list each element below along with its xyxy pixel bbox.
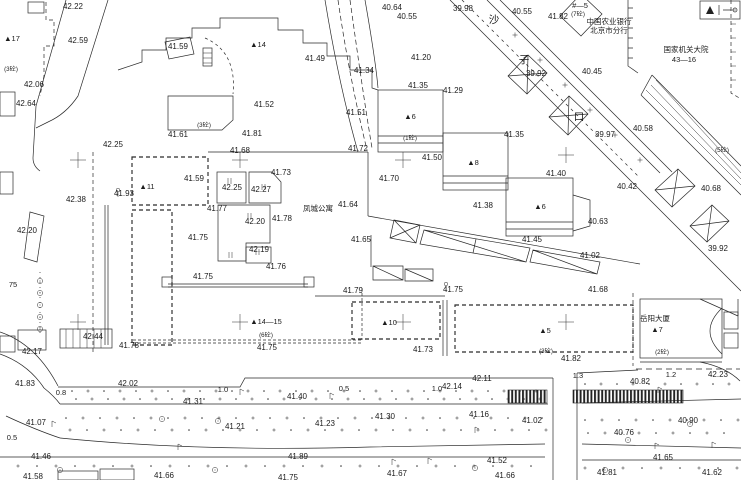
tree-icon-dot <box>40 281 41 282</box>
spot-elevation: 40.58 <box>633 124 654 133</box>
texture-dot <box>723 432 725 434</box>
texture-dot <box>107 398 109 400</box>
spot-elevation: 41.23 <box>315 419 336 428</box>
spot-elevation: 40.63 <box>588 217 609 226</box>
texture-dot <box>363 398 365 400</box>
spot-elevation: 41.65 <box>653 453 674 462</box>
structure-note: (2砼) <box>655 348 669 356</box>
texture-plus <box>659 466 662 469</box>
spot-elevation: 41.58 <box>23 472 44 480</box>
grid-cross <box>558 314 574 330</box>
texture-dot <box>689 432 691 434</box>
texture-dot <box>359 390 361 392</box>
texture-plus <box>396 464 399 467</box>
texture-dot <box>712 383 714 385</box>
building-number: ▲7 <box>651 325 663 334</box>
texture-plus <box>502 389 505 392</box>
texture-plus <box>204 428 207 431</box>
spot-elevation: 41.52 <box>254 100 275 109</box>
texture-plus <box>16 464 19 467</box>
texture-plus <box>285 416 288 419</box>
spot-elevation: 42.14 <box>442 382 463 391</box>
place-name: 国家机关大院 <box>664 44 709 54</box>
topleft-road-edges <box>0 0 108 194</box>
texture-dot <box>135 390 137 392</box>
texture-dot <box>494 429 496 431</box>
texture-dot <box>530 465 532 467</box>
tree-icon-dot <box>475 468 476 469</box>
texture-dot <box>423 390 425 392</box>
texture-plus <box>218 397 221 400</box>
slope-tick <box>428 458 432 464</box>
texture-plus <box>476 428 479 431</box>
texture-plus <box>182 389 185 392</box>
texture-plus <box>374 428 377 431</box>
spot-elevation: 41.70 <box>379 174 400 183</box>
texture-dot <box>75 398 77 400</box>
texture-dot <box>139 398 141 400</box>
spot-elevation: 40.55 <box>512 7 533 16</box>
spot-elevation: 40.68 <box>701 184 722 193</box>
texture-plus <box>282 397 285 400</box>
texture-plus <box>634 418 637 421</box>
texture-dot <box>302 465 304 467</box>
texture-dot <box>454 465 456 467</box>
texture-dot <box>391 390 393 392</box>
spot-elevation: 41.31 <box>183 397 204 406</box>
spot-elevation: 41.68 <box>588 285 609 294</box>
texture-plus <box>310 389 313 392</box>
texture-plus <box>81 416 84 419</box>
texture-plus <box>90 397 93 400</box>
dimension-mark: 1.0 <box>432 384 442 393</box>
texture-plus <box>705 431 708 434</box>
spot-elevation: 42.20 <box>245 217 266 226</box>
spot-elevation: 41.75 <box>193 272 214 281</box>
texture-plus <box>68 428 71 431</box>
texture-dot <box>395 398 397 400</box>
spot-elevation: 41.52 <box>487 456 508 465</box>
texture-plus <box>246 389 249 392</box>
texture-dot <box>405 417 407 419</box>
texture-dot <box>426 429 428 431</box>
texture-dot <box>203 398 205 400</box>
spot-elevation: 42.17 <box>22 347 43 356</box>
spot-elevation: 41.21 <box>225 422 246 431</box>
texture-dot <box>487 390 489 392</box>
spot-elevation: 40.76 <box>614 428 635 437</box>
texture-dot <box>188 465 190 467</box>
texture-dot <box>358 429 360 431</box>
texture-plus <box>320 464 323 467</box>
spot-elevation: 42.27 <box>251 185 272 194</box>
spot-elevation: 42.06 <box>24 80 45 89</box>
spot-elevation: 39.97 <box>595 130 616 139</box>
texture-dot <box>290 429 292 431</box>
curved-lane <box>325 0 378 152</box>
texture-dot <box>263 390 265 392</box>
spot-elevation: 41.65 <box>351 235 372 244</box>
texture-dot <box>652 419 654 421</box>
texture-dot <box>492 465 494 467</box>
building-number: ▲11 <box>139 182 154 191</box>
texture-plus <box>378 397 381 400</box>
texture-dot <box>65 417 67 419</box>
spot-elevation: 41.75 <box>278 473 299 480</box>
texture-dot <box>371 417 373 419</box>
spot-elevation: 41.72 <box>348 144 369 153</box>
texture-dot <box>199 390 201 392</box>
texture-dot <box>584 383 586 385</box>
crosswalk <box>573 390 683 403</box>
spot-elevation: 39.92 <box>526 69 547 78</box>
building-row-south <box>352 300 633 356</box>
texture-dot <box>188 429 190 431</box>
texture-plus <box>408 428 411 431</box>
building-number: ▲17 <box>4 34 20 43</box>
texture-plus <box>130 464 133 467</box>
texture-plus <box>599 382 602 385</box>
grid-cross <box>70 152 86 168</box>
texture-plus <box>250 397 253 400</box>
spot-elevation: 41.29 <box>443 86 464 95</box>
spot-elevation: 40.64 <box>382 3 403 12</box>
texture-dot <box>112 465 114 467</box>
spot-elevation: 41.66 <box>154 471 175 480</box>
spot-elevation: 41.64 <box>338 200 359 209</box>
texture-dot <box>167 390 169 392</box>
texture-plus <box>170 428 173 431</box>
spot-elevation: 42.11 <box>472 374 492 383</box>
crosswalk <box>508 390 547 403</box>
spot-elevation: 41.73 <box>271 168 292 177</box>
survey-map-canvas: 42.2242.5941.5942.0642.6442.2541.6141.68… <box>0 0 741 480</box>
grid-cross <box>232 314 248 330</box>
spot-elevation: 41.40 <box>287 392 308 401</box>
texture-plus <box>115 416 118 419</box>
building-number: ▲10 <box>381 318 397 327</box>
tree-icon-dot <box>40 305 41 306</box>
place-name: 岳阳大厦 <box>640 313 670 323</box>
texture-plus <box>455 416 458 419</box>
spot-elevation: 40.42 <box>617 182 638 191</box>
spot-elevation: 41.76 <box>266 262 287 271</box>
texture-plus <box>86 389 89 392</box>
texture-plus <box>206 464 209 467</box>
structure-note: (3砼) <box>4 65 18 73</box>
street-name-char: 沙 <box>489 14 500 26</box>
texture-dot <box>324 429 326 431</box>
dimension-mark: 0.5 <box>339 384 349 393</box>
west-compound-boundary <box>93 152 640 352</box>
texture-plus <box>136 428 139 431</box>
texture-plus <box>671 431 674 434</box>
texture-plus <box>149 416 152 419</box>
spot-elevation: 41.38 <box>473 201 494 210</box>
slope-tick <box>330 393 334 399</box>
building-number: ▲14 <box>250 40 266 49</box>
yueyang-tower <box>633 293 740 381</box>
texture-plus <box>472 464 475 467</box>
texture-dot <box>378 465 380 467</box>
stepped-boundary <box>118 18 378 90</box>
grid-cross <box>70 314 86 330</box>
texture-plus <box>102 428 105 431</box>
structure-note: (7砼) <box>571 10 585 18</box>
spot-elevation: 42.20 <box>17 226 38 235</box>
texture-dot <box>616 383 618 385</box>
texture-dot <box>222 429 224 431</box>
spot-elevation: 40.90 <box>678 416 699 425</box>
slope-tick <box>52 421 56 427</box>
tree-icon-dot <box>162 419 163 420</box>
texture-dot <box>303 417 305 419</box>
texture-plus <box>510 428 513 431</box>
texture-plus <box>410 397 413 400</box>
x-braced-shed <box>655 169 695 207</box>
texture-dot <box>618 419 620 421</box>
texture-dot <box>392 429 394 431</box>
texture-plus <box>697 466 700 469</box>
texture-dot <box>523 398 525 400</box>
dimension-mark: 75 <box>9 280 17 289</box>
spot-elevation: 41.62 <box>702 468 723 477</box>
spot-elevation: 41.79 <box>343 286 364 295</box>
texture-dot <box>226 465 228 467</box>
texture-plus <box>442 428 445 431</box>
texture-plus <box>168 464 171 467</box>
spot-elevation: 41.82 <box>561 354 582 363</box>
diagonal-avenue <box>450 0 741 291</box>
texture-plus <box>278 389 281 392</box>
spot-elevation: 42.23 <box>708 370 729 379</box>
spot-elevation: 41.30 <box>375 412 396 421</box>
texture-dot <box>680 383 682 385</box>
spot-elevation: 41.81 <box>597 468 618 477</box>
tree-icon-dot <box>60 470 61 471</box>
texture-dot <box>427 398 429 400</box>
texture-plus <box>353 416 356 419</box>
spot-elevation: 42.02 <box>118 379 139 388</box>
road-survey-plus <box>588 108 593 113</box>
structure-note: (3砼) <box>197 121 211 129</box>
place-name: 北京市分行 <box>590 25 628 35</box>
texture-dot <box>86 429 88 431</box>
spot-elevation: 41.51 <box>346 108 367 117</box>
texture-dot <box>679 467 681 469</box>
dimension-mark: 1.2 <box>666 370 676 379</box>
building-number: ▲6 <box>404 112 416 121</box>
spot-elevation: 42.25 <box>222 183 243 192</box>
texture-plus <box>727 382 730 385</box>
texture-plus <box>735 466 738 469</box>
texture-plus <box>118 389 121 392</box>
spot-elevation: 41.77 <box>207 204 228 213</box>
place-name: 凤城公寓 <box>303 203 333 213</box>
spot-elevation: 40.55 <box>397 12 418 21</box>
texture-dot <box>235 417 237 419</box>
spot-elevation: 41.83 <box>15 379 36 388</box>
texture-dot <box>71 390 73 392</box>
texture-plus <box>251 416 254 419</box>
building-number: 43—16 <box>672 55 696 64</box>
corner-symbol-box <box>28 2 44 13</box>
texture-dot <box>256 429 258 431</box>
texture-plus <box>282 464 285 467</box>
texture-dot <box>120 429 122 431</box>
texture-plus <box>510 464 513 467</box>
texture-plus <box>583 466 586 469</box>
texture-plus <box>183 416 186 419</box>
spot-elevation: 41.45 <box>522 235 543 244</box>
spot-elevation: 42.59 <box>68 36 89 45</box>
road-survey-plus <box>513 33 518 38</box>
texture-dot <box>154 429 156 431</box>
building-number: ▲8 <box>467 158 479 167</box>
grid-cross <box>558 147 574 163</box>
spot-elevation: 41.78 <box>119 341 140 350</box>
texture-dot <box>150 465 152 467</box>
texture-plus <box>92 464 95 467</box>
spot-elevation: 41.61 <box>168 130 189 139</box>
tree-icon-dot <box>40 329 41 330</box>
dimension-mark: 1.3 <box>573 371 583 380</box>
structure-note: (6砼) <box>259 331 273 339</box>
triangle-icon <box>706 6 714 14</box>
texture-plus <box>544 428 547 431</box>
place-name: 中国农业银行 <box>587 16 632 26</box>
texture-plus <box>474 397 477 400</box>
texture-plus <box>374 389 377 392</box>
texture-plus <box>668 418 671 421</box>
road-survey-plus <box>563 83 568 88</box>
spot-elevation: 41.89 <box>288 452 309 461</box>
texture-plus <box>695 382 698 385</box>
spot-elevation: 42.44 <box>83 332 104 341</box>
spot-elevation: 41.35 <box>504 130 525 139</box>
texture-plus <box>154 397 157 400</box>
spot-elevation: 39.92 <box>708 244 729 253</box>
x-braced-shed <box>690 205 729 242</box>
spot-elevation: 41.75 <box>257 343 278 352</box>
texture-plus <box>702 418 705 421</box>
texture-dot <box>507 417 509 419</box>
tree-icon-dot <box>215 470 216 471</box>
spot-elevation: 41.46 <box>31 452 52 461</box>
tree-icon-dot <box>218 421 219 422</box>
texture-dot <box>267 398 269 400</box>
texture-plus <box>637 431 640 434</box>
spot-elevation: 41.49 <box>305 54 326 63</box>
spot-elevation: 41.07 <box>26 418 47 427</box>
fence-with-ticks <box>628 0 638 73</box>
texture-plus <box>306 428 309 431</box>
texture-dot <box>74 465 76 467</box>
building-number: ▲6 <box>534 202 546 211</box>
texture-plus <box>122 397 125 400</box>
texture-dot <box>584 419 586 421</box>
texture-dot <box>720 419 722 421</box>
texture-dot <box>235 398 237 400</box>
texture-plus <box>470 389 473 392</box>
texture-plus <box>406 389 409 392</box>
texture-plus <box>346 397 349 400</box>
texture-dot <box>36 465 38 467</box>
texture-plus <box>150 389 153 392</box>
spot-elevation: 40.82 <box>630 377 651 386</box>
spot-elevation: 41.73 <box>413 345 434 354</box>
texture-dot <box>133 417 135 419</box>
structure-note: (5砼) <box>715 146 729 154</box>
building-number: ▲14—15 <box>250 317 282 326</box>
spot-elevation: 41.78 <box>272 214 293 223</box>
spot-elevation: 41.75 <box>188 233 209 242</box>
texture-dot <box>439 417 441 419</box>
texture-dot <box>337 417 339 419</box>
cross-street <box>553 373 577 480</box>
spot-elevation: 42.38 <box>66 195 87 204</box>
texture-dot <box>269 417 271 419</box>
texture-dot <box>655 432 657 434</box>
spot-elevation: 42.25 <box>103 140 124 149</box>
texture-dot <box>459 398 461 400</box>
spot-elevation: 42.64 <box>16 99 37 108</box>
street-name-char: 口 <box>574 111 585 123</box>
stairs-icon <box>203 48 212 66</box>
slope-tick <box>178 444 182 450</box>
spot-elevation: 42.19 <box>249 245 270 254</box>
texture-dot <box>331 398 333 400</box>
building-number: #—5 <box>572 1 588 10</box>
road-survey-plus <box>538 58 543 63</box>
texture-plus <box>314 397 317 400</box>
road-network <box>0 332 741 480</box>
spot-elevation: 41.82 <box>548 12 569 21</box>
texture-plus <box>736 418 739 421</box>
texture-dot <box>641 467 643 469</box>
texture-dot <box>201 417 203 419</box>
spot-elevation: 41.02 <box>522 416 543 425</box>
building-14-15-wall <box>162 277 314 287</box>
grid-cross <box>395 314 411 330</box>
spot-elevation: 41.20 <box>411 53 432 62</box>
slope-tick <box>392 459 396 465</box>
texture-dot <box>416 465 418 467</box>
building-number: ▲5 <box>539 326 551 335</box>
spot-elevation: 41.59 <box>168 42 189 51</box>
map-labels-layer: 42.2242.5941.5942.0642.6442.2541.6141.68… <box>4 1 729 480</box>
dimension-mark: 1.0 <box>218 385 228 394</box>
spot-elevation: 41.35 <box>408 81 429 90</box>
texture-plus <box>358 464 361 467</box>
spot-elevation: 41.67 <box>387 469 408 478</box>
texture-dot <box>491 398 493 400</box>
spot-elevation: 41.75 <box>443 285 464 294</box>
road-survey-plus <box>638 158 643 163</box>
spot-elevation: 41.66 <box>495 471 516 480</box>
slope-tick <box>240 389 244 395</box>
street-name-char: 子 <box>519 54 530 66</box>
texture-plus <box>489 416 492 419</box>
dimension-mark: 0.8 <box>56 388 66 397</box>
texture-plus <box>442 397 445 400</box>
spot-elevation: 41.34 <box>354 66 375 75</box>
spot-elevation: 41.68 <box>230 146 251 155</box>
texture-plus <box>600 418 603 421</box>
texture-plus <box>244 464 247 467</box>
spot-elevation: 41.40 <box>546 169 567 178</box>
texture-dot <box>171 398 173 400</box>
